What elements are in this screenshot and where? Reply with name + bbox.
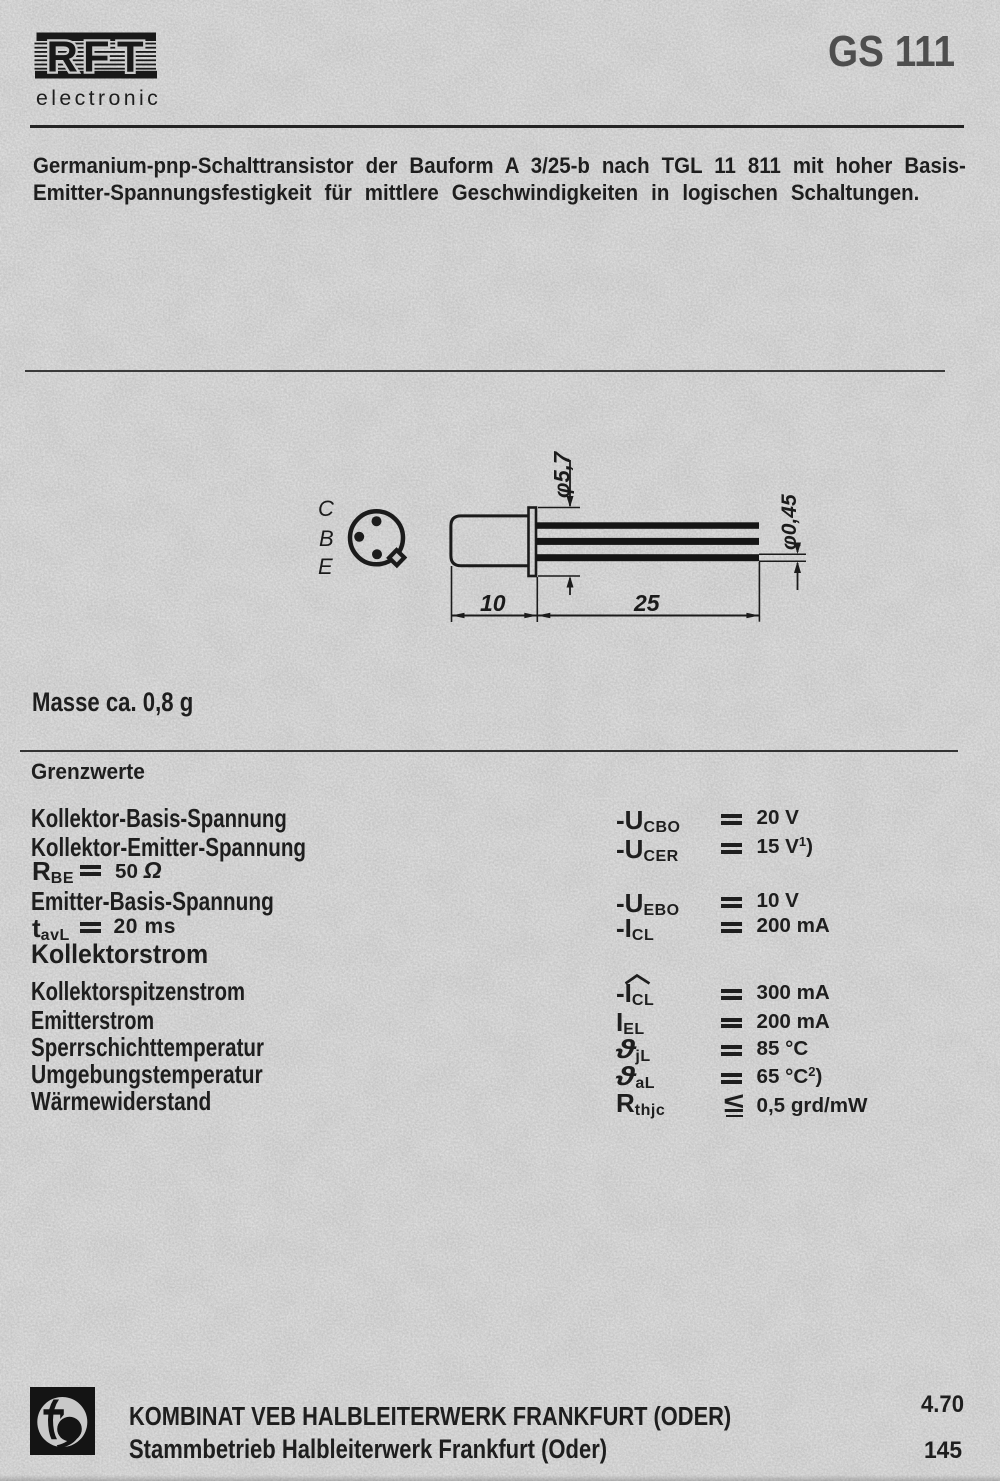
svg-text:φ5,7: φ5,7: [550, 450, 575, 498]
svg-text:φ0,45: φ0,45: [778, 494, 801, 550]
svg-text:B: B: [319, 526, 334, 551]
svg-text:E: E: [318, 554, 333, 579]
svg-text:C: C: [318, 496, 334, 521]
svg-text:10: 10: [480, 590, 506, 616]
svg-text:25: 25: [633, 590, 661, 616]
